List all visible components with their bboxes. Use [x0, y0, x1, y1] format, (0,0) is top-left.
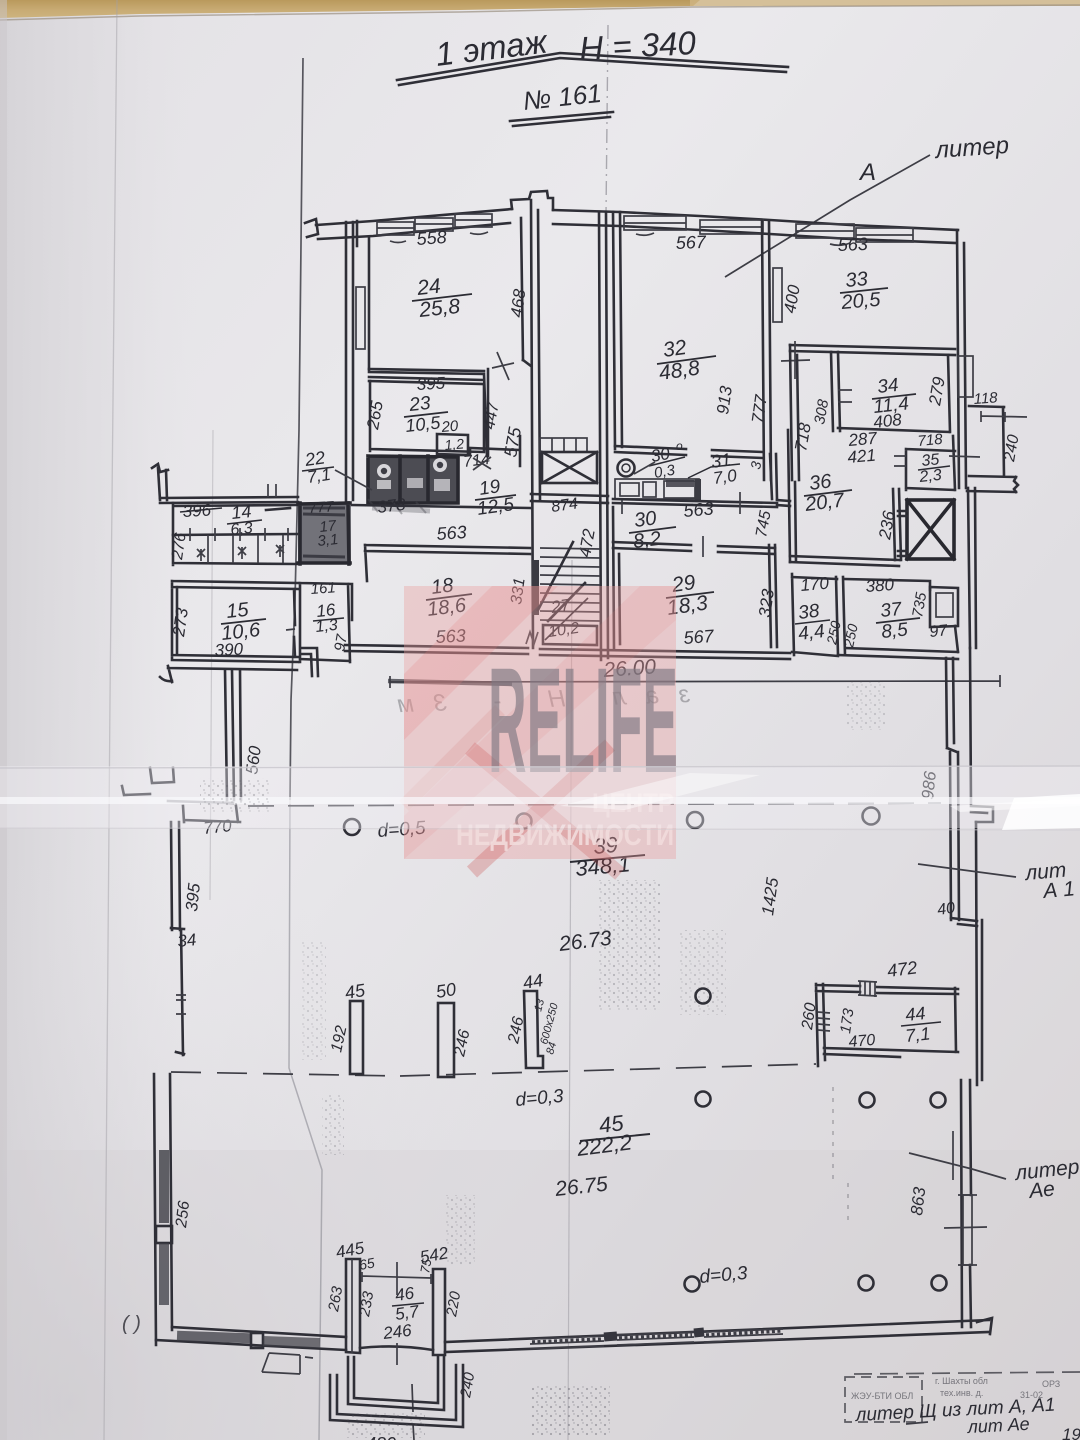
svg-text:563: 563	[837, 234, 868, 255]
svg-text:4,4: 4,4	[797, 621, 826, 645]
svg-text:1,2: 1,2	[444, 435, 465, 453]
svg-text:45: 45	[343, 980, 367, 1003]
svg-text:лит Ае: лит Ае	[966, 1414, 1030, 1437]
svg-text:777: 777	[308, 498, 335, 517]
svg-text:863: 863	[907, 1185, 929, 1216]
svg-text:323: 323	[755, 587, 778, 618]
svg-text:390: 390	[214, 640, 244, 660]
svg-text:8,5: 8,5	[880, 619, 909, 643]
svg-text:7,0: 7,0	[712, 466, 739, 488]
svg-text:170: 170	[800, 574, 830, 595]
svg-text:25,8: 25,8	[417, 295, 461, 322]
svg-text:470: 470	[848, 1032, 876, 1051]
svg-text:40: 40	[936, 900, 956, 919]
svg-text:563: 563	[436, 522, 467, 544]
svg-text:20,5: 20,5	[840, 289, 883, 314]
svg-text:тех.инв. д.: тех.инв. д.	[940, 1388, 983, 1398]
svg-text:44: 44	[521, 970, 544, 993]
svg-text:А: А	[858, 159, 876, 186]
svg-text:395: 395	[416, 374, 446, 394]
svg-text:395: 395	[182, 882, 204, 913]
svg-text:246: 246	[381, 1321, 413, 1344]
svg-text:472: 472	[886, 957, 918, 981]
svg-text:2,3: 2,3	[918, 467, 943, 486]
svg-text:1,3: 1,3	[315, 617, 339, 636]
svg-text:97: 97	[929, 622, 950, 641]
svg-text:161: 161	[310, 579, 336, 598]
svg-text:38: 38	[797, 600, 821, 623]
svg-text:118: 118	[973, 389, 999, 408]
svg-text:173: 173	[837, 1007, 857, 1035]
svg-text:567: 567	[683, 626, 715, 648]
svg-text:37: 37	[879, 599, 904, 622]
svg-text:44: 44	[904, 1003, 926, 1025]
svg-text:408: 408	[872, 410, 903, 432]
svg-text:Ае: Ае	[1026, 1177, 1056, 1203]
svg-text:33: 33	[845, 268, 869, 292]
svg-text:3,1: 3,1	[317, 531, 340, 550]
svg-text:558: 558	[416, 227, 447, 249]
svg-text:50: 50	[434, 979, 457, 1002]
svg-text:А 1: А 1	[1040, 877, 1075, 903]
svg-text:777: 777	[748, 393, 771, 424]
svg-text:567: 567	[675, 232, 707, 253]
svg-text:913: 913	[713, 384, 736, 415]
svg-text:7,1: 7,1	[306, 465, 332, 487]
svg-text:литер: литер	[933, 132, 1010, 164]
svg-text:г. Шахты обл: г. Шахты обл	[935, 1376, 988, 1386]
svg-text:ЖЭУ-БТИ ОБЛ: ЖЭУ-БТИ ОБЛ	[851, 1391, 913, 1401]
svg-text:d=0,3: d=0,3	[515, 1086, 565, 1111]
svg-text:7,1: 7,1	[904, 1023, 931, 1046]
svg-text:563: 563	[683, 498, 715, 521]
svg-text:20: 20	[440, 418, 460, 437]
svg-text:o: o	[676, 439, 683, 453]
svg-text:( ): ( )	[122, 1313, 141, 1335]
svg-text:34: 34	[176, 930, 197, 951]
svg-text:718: 718	[917, 431, 944, 450]
svg-text:10,5: 10,5	[404, 412, 442, 436]
svg-text:ОРЗ: ОРЗ	[1042, 1379, 1060, 1389]
svg-text:256: 256	[173, 1200, 193, 1230]
svg-text:380: 380	[865, 575, 895, 596]
svg-text:421: 421	[847, 446, 877, 467]
svg-text:d=0,3: d=0,3	[699, 1263, 749, 1288]
svg-text:468: 468	[507, 287, 529, 318]
svg-text:65: 65	[358, 1254, 376, 1272]
svg-text:19: 19	[1062, 1425, 1080, 1440]
